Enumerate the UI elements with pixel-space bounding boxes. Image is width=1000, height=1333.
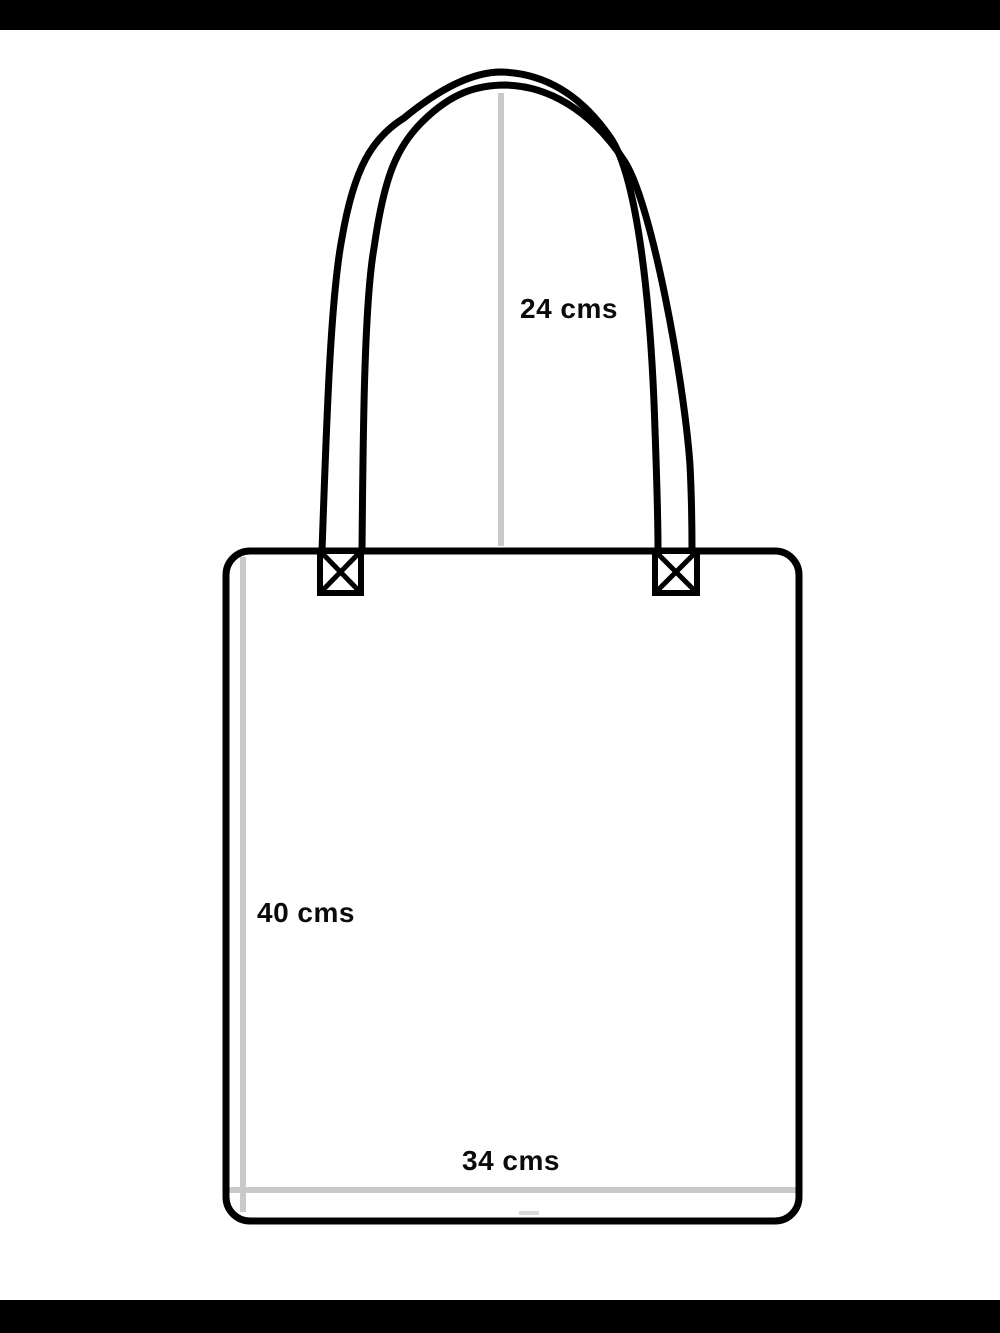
bag-height-label: 40 cms — [257, 897, 355, 928]
attachment-stitch-box-left — [320, 551, 361, 593]
letterbox-top-bar — [0, 0, 1000, 30]
attachment-stitch-box-right — [655, 551, 697, 593]
bag-body-outline — [226, 551, 799, 1221]
tote-bag-diagram: 24 cms 40 cms 34 cms — [0, 0, 1000, 1333]
letterbox-bottom-bar — [0, 1300, 1000, 1333]
handle-height-label: 24 cms — [520, 293, 618, 324]
bag-width-label: 34 cms — [462, 1145, 560, 1176]
diagram-canvas: 24 cms 40 cms 34 cms — [0, 0, 1000, 1333]
